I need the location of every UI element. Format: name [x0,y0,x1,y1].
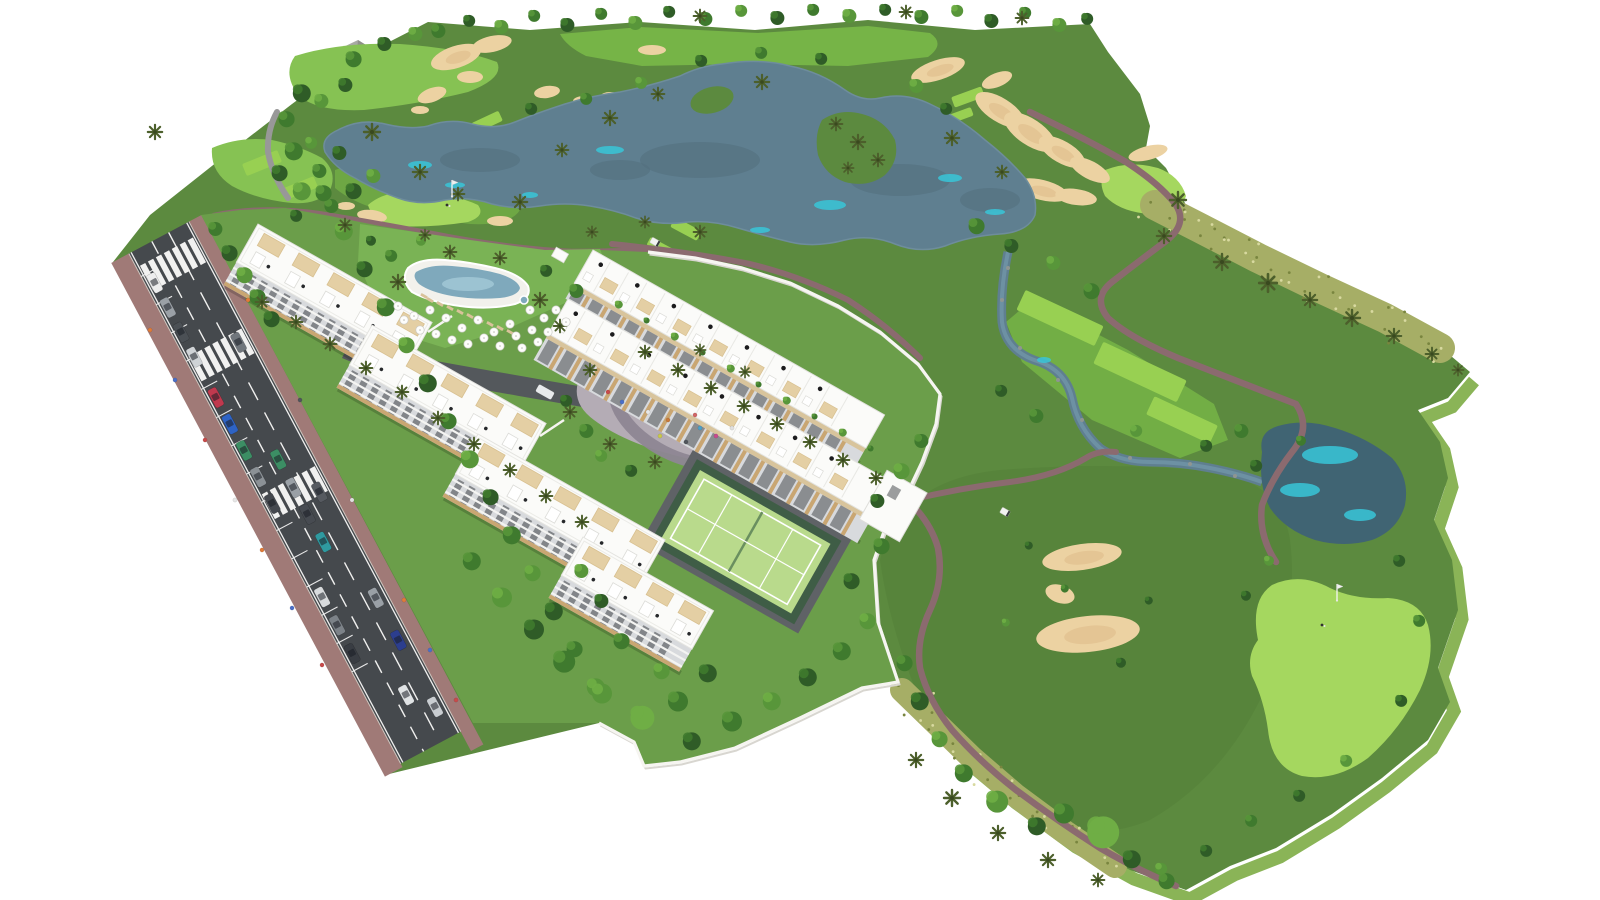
tree-highlight [844,573,853,582]
stream-rock [1056,378,1060,382]
golfer-bag [1324,625,1326,627]
palm-tree [452,188,465,201]
tree-highlight [461,450,471,460]
tree-highlight [1293,790,1300,797]
tree-highlight [357,261,366,270]
umbrella-pole [529,309,531,311]
tree-highlight [366,169,374,177]
palm-crown [588,368,591,371]
umbrella-pole [493,331,495,333]
tree-highlight [592,684,603,695]
tree-highlight [727,365,731,369]
tree-highlight [332,146,340,154]
scrub-speckle [1387,342,1390,345]
tree-highlight [1004,239,1012,247]
tree-highlight [503,526,513,536]
tree-highlight [1061,585,1065,589]
scrub-speckle [1075,841,1078,844]
flag-base [451,195,453,197]
palm-crown [1046,858,1050,862]
scrub-speckle [1184,210,1187,213]
palm-tree [256,296,269,309]
tree-highlight [812,413,815,416]
tree-highlight [1052,18,1060,26]
palm-crown [364,366,367,369]
scrub-speckle [1213,227,1216,230]
person [714,434,718,438]
palm-tree [148,125,162,139]
tree-highlight [722,712,733,723]
tree-highlight [911,692,921,702]
tree-highlight [614,633,623,642]
palm-tree [1452,364,1463,375]
tree-highlight [1296,436,1302,442]
umbrella-pole [565,321,567,323]
tree-highlight [1159,873,1168,882]
golfer-bag [449,205,451,207]
palm-tree [540,490,553,503]
scrub-speckle [1287,281,1290,284]
scrub-speckle [1168,217,1171,220]
tree-highlight [969,218,978,227]
umbrella-pole [547,331,549,333]
scrub-speckle [1353,304,1356,307]
tree-highlight [1200,845,1207,852]
scrub-speckle [973,783,976,786]
tree-highlight [1395,695,1402,702]
palm-tree [324,338,337,351]
stream-rock [1018,346,1022,350]
palm-tree [564,406,577,419]
tree-highlight [1340,755,1347,762]
palm-crown [950,796,954,800]
flag-base [1336,599,1338,601]
tree-highlight [755,47,762,54]
deep-water-patch [960,188,1020,212]
palm-tree [991,826,1005,840]
tree-highlight [463,15,470,22]
scrub-speckle [1303,290,1306,293]
scrub-speckle [1383,328,1386,331]
tree-highlight [1116,658,1122,664]
aerial-rendering-golf-resort [0,0,1600,900]
tree-highlight [580,93,587,100]
palm-tree [1387,329,1401,343]
deep-water-patch [640,142,760,178]
tree-highlight [644,317,647,320]
palm-crown [698,14,701,17]
palm-crown [709,386,712,389]
sand-bunker [638,45,666,55]
person [730,426,734,430]
palm-crown [1430,352,1433,355]
scrub-speckle [919,719,922,722]
scrub-speckle [986,778,989,781]
stream-rock [1080,418,1084,422]
tree-highlight [1413,615,1420,622]
tree-highlight [783,397,787,401]
palm-tree [290,316,303,329]
palm-crown [841,458,844,461]
tree-highlight [894,463,903,472]
tree-highlight [1234,424,1242,432]
umbrella-pole [435,333,437,335]
palm-crown [656,92,659,95]
tree-highlight [870,494,878,502]
palm-crown [742,404,745,407]
water-highlight [1344,509,1376,521]
tree-highlight [833,642,843,652]
tree-highlight [545,602,555,612]
palm-crown [876,158,879,161]
tree-highlight [293,84,303,94]
tree-highlight [625,465,632,472]
umbrella-pole [477,319,479,321]
palm-crown [472,442,475,445]
palm-tree [533,293,547,307]
tree-highlight [560,395,567,402]
scrub-speckle [1149,201,1152,204]
palm-tree [584,364,597,377]
tree-highlight [264,311,273,320]
water-highlight [985,209,1005,215]
palm-tree [652,88,665,101]
scrub-speckle [1000,766,1003,769]
sand-bunker [487,216,513,226]
palm-tree [413,165,427,179]
palm-crown [914,758,918,762]
scrub-speckle [1427,342,1430,345]
scrub-speckle [1197,219,1200,222]
palm-crown [856,140,860,144]
palm-tree [639,216,650,227]
umbrella-pole [499,345,501,347]
water-highlight [596,146,624,154]
person [290,606,294,610]
tree-highlight [285,142,295,152]
tree-highlight [525,565,534,574]
tree-highlight [431,24,439,32]
scrub-speckle [1404,319,1407,322]
palm-tree [339,219,352,232]
scrub-speckle [1318,276,1321,279]
water-highlight [750,227,770,233]
tree-highlight [1145,597,1149,601]
scrub-speckle [1371,310,1374,313]
scrub-speckle [1255,256,1258,259]
tree-highlight [807,4,814,11]
palm-crown [644,221,647,224]
scrub-speckle [927,728,930,731]
palm-tree [1259,274,1277,292]
scrub-speckle [1270,269,1273,272]
umbrella-pole [483,337,485,339]
scrub-speckle [951,742,954,745]
tree-highlight [305,137,312,144]
palm-crown [847,167,850,170]
tree-highlight [842,9,850,17]
palm-tree [909,753,923,767]
scrub-speckle [1334,307,1337,310]
tree-highlight [1054,804,1065,815]
umbrella-pole [531,329,533,331]
umbrella-pole [413,315,415,317]
palm-crown [775,422,778,425]
palm-tree [444,246,457,259]
tree-highlight [408,27,416,35]
palm-crown [996,831,1000,835]
tree-highlight [1130,425,1137,432]
tree-highlight [525,103,532,110]
tree-highlight [909,79,917,87]
tree-highlight [1029,409,1037,417]
tree-highlight [419,374,429,384]
palm-tree [1157,229,1171,243]
deep-water-patch [440,148,520,172]
palm-crown [568,410,571,413]
tree-highlight [735,5,742,12]
palm-tree [364,124,380,140]
tree-highlight [1200,440,1207,447]
umbrella-pole [419,329,421,331]
palm-crown [544,494,547,497]
golfer [446,204,449,207]
palm-crown [699,349,702,352]
palm-crown [643,350,646,353]
tree-highlight [635,77,642,84]
tree-highlight [338,78,346,86]
tree-highlight [671,333,675,337]
palm-crown [608,116,612,120]
water-highlight [814,200,846,210]
person [693,413,697,417]
palm-crown [328,342,331,345]
tree-highlight [272,165,281,174]
tree-highlight [984,14,992,22]
scrub-speckle [1106,862,1109,865]
person [684,440,688,444]
tree-highlight [763,692,773,702]
palm-tree [694,10,707,23]
palm-crown [508,468,511,471]
palm-tree [872,154,885,167]
palm-tree [432,412,445,425]
scrub-speckle [1347,308,1350,311]
palm-tree [586,226,597,237]
tree-highlight [237,267,246,276]
scrub-speckle [1403,311,1406,314]
palm-crown [153,130,157,134]
tree-highlight [377,37,385,45]
golfer [1321,624,1324,627]
tree-highlight [683,732,693,742]
palm-crown [558,324,561,327]
tree-highlight [770,11,778,19]
palm-tree [468,438,481,451]
palm-tree [1344,310,1360,326]
person [233,498,237,502]
palm-tree [504,464,517,477]
tree-highlight [293,182,303,192]
palm-tree [391,275,405,289]
tree-highlight [654,663,663,672]
umbrella-pole [445,317,447,319]
tree-highlight [951,5,958,12]
umbrella-pole [397,305,399,307]
palm-crown [808,440,811,443]
tree-highlight [630,706,643,719]
palm-tree [694,344,705,355]
scrub-speckle [953,757,956,760]
tree-highlight [874,538,883,547]
palm-crown [760,80,764,84]
palm-crown [560,148,563,151]
tree-highlight [668,692,679,703]
tree-highlight [995,385,1002,392]
palm-tree [360,362,373,375]
palm-crown [580,520,583,523]
umbrella-pole [555,309,557,311]
palm-crown [1308,298,1312,302]
tree-highlight [1393,555,1400,562]
tree-highlight [1028,817,1038,827]
scrub-speckle [1387,306,1390,309]
sand-bunker [411,106,429,114]
person [320,663,324,667]
water-highlight [938,174,962,182]
tree-highlight [279,111,288,120]
palm-tree [1303,293,1317,307]
person [646,410,650,414]
scrub-speckle [903,714,906,717]
palm-tree [1041,853,1055,867]
tree-highlight [463,552,473,562]
scrub-speckle [1257,243,1260,246]
tree-highlight [314,94,322,102]
palm-tree [672,364,685,377]
palm-tree [639,346,652,359]
person [428,648,432,652]
palm-tree [830,118,843,131]
palm-crown [418,170,422,174]
scrub-speckle [952,750,955,753]
scrub-speckle [1199,234,1202,237]
tree-highlight [1084,283,1093,292]
tree-highlight [366,236,372,242]
person [203,438,207,442]
palm-crown [676,368,679,371]
palm-crown [538,298,542,302]
scrub-speckle [1391,306,1394,309]
tree-highlight [799,668,809,678]
water-highlight [1302,446,1358,464]
tree-highlight [595,450,602,457]
palm-crown [608,442,611,445]
scrub-speckle [931,711,934,714]
tree-highlight [540,265,547,272]
tree-highlight [914,10,922,18]
tree-highlight [560,18,568,26]
tree-highlight [1002,619,1006,623]
palm-tree [604,438,617,451]
tree-highlight [595,8,602,15]
palm-crown [950,136,954,140]
palm-crown [1457,369,1460,372]
palm-crown [591,231,594,234]
umbrella-pole [509,323,511,325]
palm-crown [1000,170,1003,173]
tree-highlight [839,429,843,433]
scrub-speckle [1288,271,1291,274]
scrub-speckle [1223,238,1226,241]
scrub-speckle [1031,815,1034,818]
palm-tree [944,790,960,806]
umbrella-pole [543,317,545,319]
scrub-speckle [1211,223,1214,226]
tree-highlight [955,764,965,774]
person [606,390,610,394]
person [402,598,406,602]
tree-highlight [756,381,759,384]
tree-highlight [567,641,576,650]
palm-tree [755,75,769,89]
scrub-speckle [1043,815,1046,818]
stream-rock [1233,474,1237,478]
person [658,434,662,438]
palm-crown [294,320,297,323]
tree-highlight [492,588,503,599]
stream-rock [1000,298,1004,302]
tree-highlight [695,55,702,62]
palm-crown [744,371,747,374]
palm-crown [424,234,427,237]
tree-highlight [1046,256,1054,264]
tree-highlight [346,183,355,192]
tree-highlight [208,222,216,230]
palm-crown [370,130,374,134]
umbrella-pole [537,341,539,343]
tree-highlight [399,337,408,346]
palm-tree [738,400,751,413]
palm-tree [556,144,569,157]
palm-crown [498,256,501,259]
scrub-speckle [1440,347,1443,350]
tree-highlight [940,103,947,110]
palm-tree [1214,254,1230,270]
palm-crown [653,460,656,463]
palm-tree [996,166,1009,179]
palm-tree [739,366,750,377]
palm-tree [396,386,409,399]
stream-rock [1188,462,1192,466]
tree-highlight [1250,460,1257,467]
scrub-speckle [1227,239,1230,242]
palm-crown [260,300,263,303]
scrub-speckle [1115,865,1118,868]
tree-highlight [377,298,387,308]
person [620,400,624,404]
tree-highlight [553,651,565,663]
palm-tree [603,111,617,125]
tree-highlight [1241,591,1247,597]
scene-canvas [0,0,1600,900]
person [698,426,702,430]
umbrella-pole [521,347,523,349]
tree-highlight [290,210,297,217]
tree-highlight [868,445,871,448]
palm-tree [804,436,817,449]
umbrella-pole [403,319,405,321]
